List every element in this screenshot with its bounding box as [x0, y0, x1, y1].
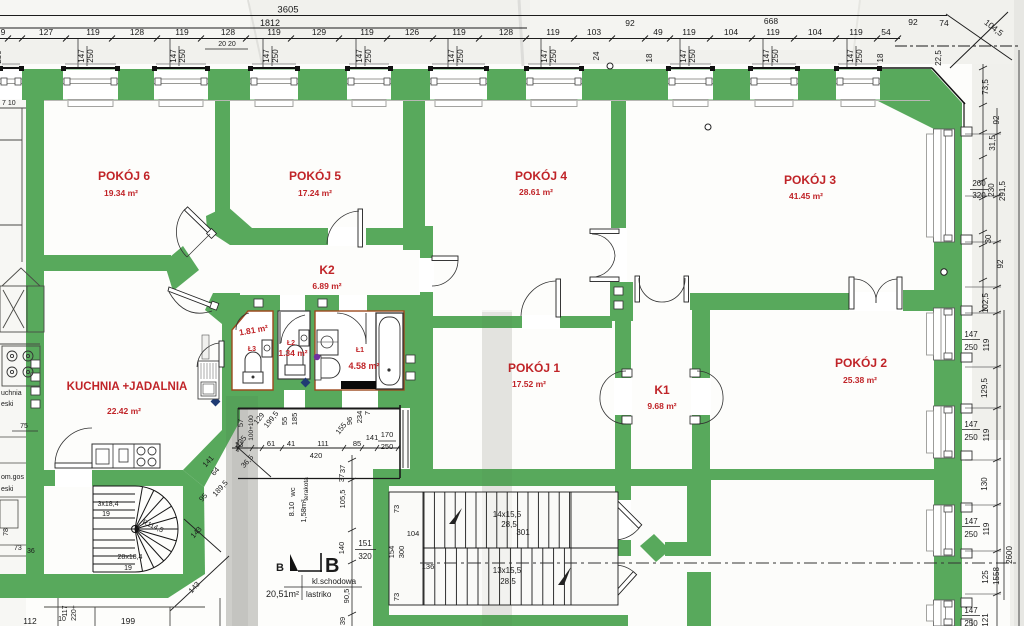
svg-text:103: 103: [587, 27, 601, 37]
svg-text:7 10: 7 10: [2, 100, 16, 107]
svg-text:73: 73: [14, 545, 22, 552]
svg-text:105,5: 105,5: [338, 490, 347, 509]
svg-text:17.52 m²: 17.52 m²: [512, 379, 546, 389]
svg-text:250: 250: [964, 343, 978, 352]
svg-text:7: 7: [363, 411, 372, 415]
svg-text:129,5: 129,5: [980, 377, 989, 398]
svg-text:POKÓJ 1: POKÓJ 1: [508, 360, 560, 375]
svg-text:eski: eski: [1, 486, 14, 493]
svg-text:154: 154: [387, 546, 396, 559]
svg-text:119: 119: [360, 27, 374, 37]
svg-text:147: 147: [964, 330, 978, 339]
svg-text:300: 300: [397, 546, 406, 559]
svg-text:102,5: 102,5: [981, 292, 990, 313]
svg-text:104: 104: [724, 27, 738, 37]
svg-text:3x18,4: 3x18,4: [97, 501, 118, 508]
svg-text:121: 121: [981, 613, 990, 626]
svg-text:49: 49: [653, 27, 663, 37]
svg-text:POKÓJ 2: POKÓJ 2: [835, 355, 887, 370]
svg-text:1,58m²: 1,58m²: [299, 499, 308, 523]
svg-text:128: 128: [221, 27, 235, 37]
svg-text:141: 141: [366, 433, 379, 442]
svg-text:250: 250: [0, 50, 3, 64]
svg-text:199: 199: [121, 616, 135, 626]
svg-text:301: 301: [516, 528, 530, 537]
svg-text:eski: eski: [1, 401, 14, 408]
svg-text:111: 111: [317, 439, 328, 448]
svg-text:127: 127: [39, 27, 53, 37]
svg-text:8.10: 8.10: [287, 502, 296, 517]
svg-text:9.68 m²: 9.68 m²: [647, 401, 676, 411]
svg-text:41.45 m²: 41.45 m²: [789, 191, 823, 201]
svg-text:260: 260: [972, 179, 986, 188]
svg-text:B: B: [276, 562, 284, 574]
svg-text:1.34 m²: 1.34 m²: [278, 348, 307, 358]
svg-text:112: 112: [23, 616, 37, 626]
svg-text:119: 119: [86, 27, 100, 37]
svg-text:130: 130: [980, 477, 989, 491]
svg-text:78: 78: [3, 528, 10, 536]
svg-text:92: 92: [992, 115, 1001, 124]
svg-text:61: 61: [267, 439, 275, 448]
svg-text:75: 75: [20, 423, 28, 430]
svg-text:19: 19: [102, 511, 110, 518]
svg-text:9: 9: [1, 27, 6, 37]
svg-text:22.42 m²: 22.42 m²: [107, 406, 141, 416]
svg-text:B: B: [325, 555, 339, 577]
svg-text:lastriko: lastriko: [306, 590, 332, 599]
svg-text:320: 320: [358, 552, 372, 561]
svg-text:20,51m²: 20,51m²: [266, 589, 299, 599]
svg-text:30: 30: [984, 234, 993, 243]
svg-text:119: 119: [849, 27, 863, 37]
svg-text:73: 73: [392, 593, 401, 601]
svg-text:6.89 m²: 6.89 m²: [312, 281, 341, 291]
svg-text:129: 129: [312, 27, 326, 37]
svg-text:37: 37: [337, 474, 346, 482]
svg-text:92: 92: [908, 17, 918, 27]
svg-text:119: 119: [982, 338, 991, 351]
svg-text:119: 119: [766, 27, 780, 37]
svg-text:41: 41: [287, 439, 295, 448]
svg-text:119: 119: [267, 27, 281, 37]
svg-text:4.58 m²: 4.58 m²: [348, 361, 379, 371]
svg-text:kl.schodowa: kl.schodowa: [312, 577, 357, 586]
svg-text:terakota: terakota: [303, 477, 310, 501]
svg-text:147: 147: [964, 420, 978, 429]
svg-text:92: 92: [996, 259, 1005, 268]
svg-text:20 20: 20 20: [218, 41, 236, 48]
svg-text:117: 117: [62, 605, 69, 616]
svg-text:147: 147: [964, 606, 978, 615]
svg-text:K2: K2: [319, 263, 335, 277]
svg-text:POKÓJ 6: POKÓJ 6: [98, 168, 150, 183]
svg-text:92: 92: [625, 18, 635, 28]
svg-text:73: 73: [392, 505, 401, 513]
svg-text:3605: 3605: [277, 5, 298, 16]
svg-text:wc: wc: [288, 487, 297, 497]
svg-text:147: 147: [964, 517, 978, 526]
svg-text:24: 24: [592, 51, 601, 60]
svg-text:19.34 m²: 19.34 m²: [104, 188, 138, 198]
svg-text:54: 54: [881, 27, 891, 37]
svg-text:668: 668: [764, 16, 778, 26]
svg-text:73,5: 73,5: [981, 79, 990, 95]
svg-text:Ł2: Ł2: [287, 340, 295, 347]
svg-text:1558: 1558: [992, 567, 1001, 585]
svg-text:90,5: 90,5: [342, 589, 351, 604]
svg-text:POKÓJ 3: POKÓJ 3: [784, 172, 836, 187]
svg-text:25.38 m²: 25.38 m²: [843, 375, 877, 385]
svg-text:119: 119: [546, 27, 560, 37]
svg-text:KUCHNIA +JADALNIA: KUCHNIA +JADALNIA: [67, 381, 188, 393]
svg-text:36: 36: [27, 548, 35, 555]
svg-text:Ł1: Ł1: [356, 347, 364, 354]
svg-text:128: 128: [499, 27, 513, 37]
svg-text:140: 140: [337, 542, 346, 555]
svg-text:250: 250: [964, 619, 978, 626]
svg-text:om.gos: om.gos: [1, 474, 24, 481]
svg-text:22,5: 22,5: [934, 50, 943, 66]
svg-text:31,5: 31,5: [988, 135, 997, 151]
svg-text:320: 320: [972, 191, 986, 200]
svg-text:Ł3: Ł3: [248, 346, 256, 353]
svg-text:220+: 220+: [71, 605, 78, 621]
svg-text:250: 250: [178, 49, 187, 63]
svg-text:74: 74: [939, 18, 949, 28]
svg-text:151: 151: [358, 539, 372, 548]
svg-text:104: 104: [808, 27, 822, 37]
svg-text:119: 119: [452, 27, 466, 37]
svg-text:291,5: 291,5: [998, 180, 1007, 201]
svg-text:119: 119: [682, 27, 696, 37]
svg-text:250: 250: [964, 433, 978, 442]
svg-text:55: 55: [280, 417, 289, 425]
svg-text:230: 230: [987, 183, 996, 197]
svg-text:17.24 m²: 17.24 m²: [298, 188, 332, 198]
svg-text:119: 119: [982, 428, 991, 441]
svg-text:170: 170: [381, 430, 394, 439]
svg-text:147: 147: [169, 49, 178, 63]
svg-text:119: 119: [175, 27, 189, 37]
svg-text:250: 250: [381, 442, 394, 451]
svg-text:POKÓJ 4: POKÓJ 4: [515, 168, 567, 183]
svg-text:126: 126: [405, 27, 419, 37]
svg-text:2600: 2600: [1005, 546, 1014, 564]
svg-text:28.61 m²: 28.61 m²: [519, 187, 553, 197]
svg-text:119: 119: [982, 522, 991, 535]
svg-text:85: 85: [353, 439, 361, 448]
svg-text:128: 128: [130, 27, 144, 37]
svg-text:uchnia: uchnia: [1, 390, 22, 397]
svg-text:104: 104: [407, 529, 420, 538]
svg-text:37: 37: [338, 465, 347, 473]
svg-text:18: 18: [645, 53, 654, 62]
svg-text:POKÓJ 5: POKÓJ 5: [289, 168, 341, 183]
svg-text:39: 39: [338, 617, 347, 625]
svg-text:19: 19: [124, 565, 132, 572]
svg-text:250: 250: [964, 530, 978, 539]
svg-text:28x18,4: 28x18,4: [118, 554, 143, 561]
svg-text:185: 185: [290, 413, 299, 426]
svg-text:18: 18: [876, 53, 885, 62]
svg-text:125: 125: [981, 570, 990, 584]
svg-text:96: 96: [345, 417, 354, 425]
svg-text:420: 420: [310, 451, 323, 460]
svg-text:K1: K1: [654, 383, 670, 397]
